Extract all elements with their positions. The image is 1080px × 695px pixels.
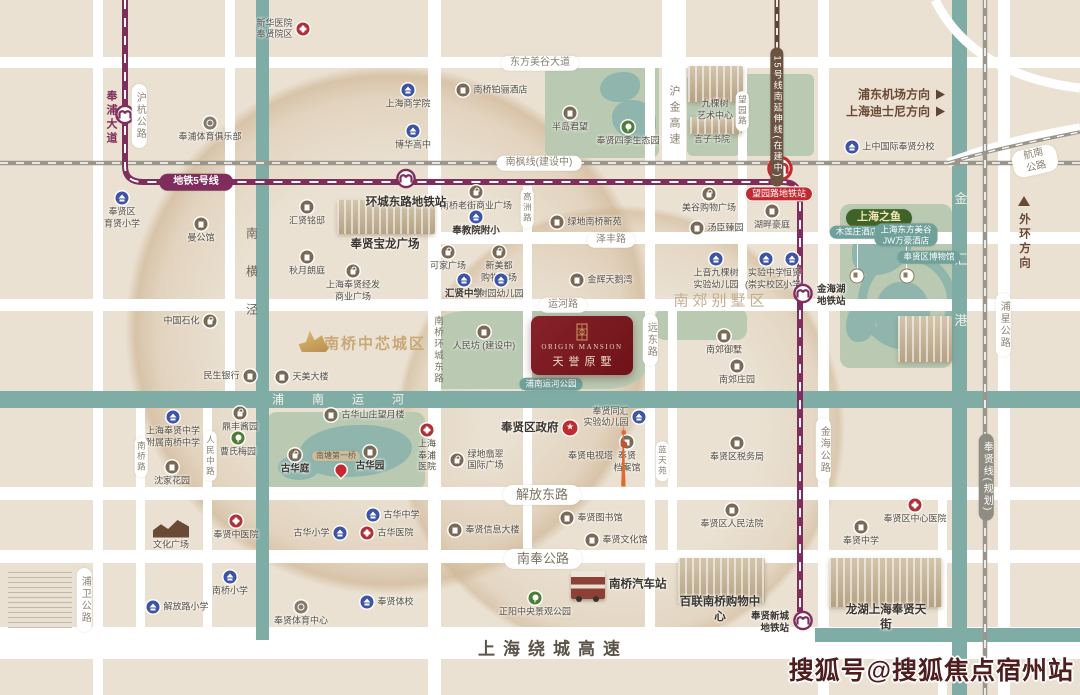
school-icon: [334, 527, 347, 540]
poi-label: 奉贤图书馆: [578, 512, 623, 524]
poi-label: 绿地南桥新苑: [568, 216, 622, 228]
poi-gov: 奉贤中学: [855, 521, 868, 534]
poi-gov: 天美大楼: [276, 371, 289, 384]
poi-label: 半岛君望: [552, 122, 588, 134]
poi-school: 恒贤 小学: [786, 253, 799, 266]
school-icon: [846, 141, 859, 154]
poi-res: 沈家花园: [166, 461, 179, 474]
school-icon: [407, 125, 420, 138]
poi-none: 龙湖上海奉贤天街: [841, 603, 931, 633]
poi-res: 南郊庄园: [731, 360, 744, 373]
poi-label: 上海奉贤经发 商业广场: [326, 280, 380, 303]
poi-school: 上中国际奉贤分校: [846, 141, 859, 154]
hosp-icon: [361, 527, 374, 540]
road-label: 奉贤线(规划): [979, 434, 994, 521]
poi-label: 古华山庄望月楼: [342, 409, 405, 421]
poi-school: 上海奉贤中学 附属南桥中学: [167, 411, 180, 424]
road-label: 15号线南延伸线(在建中): [770, 47, 783, 186]
bus-icon: [571, 571, 605, 599]
poi-label: 奉贤区 育贤小学: [104, 207, 140, 230]
poi-school: 南桥小学: [224, 571, 237, 584]
poi-school: 古华中学: [367, 509, 380, 522]
landmark-icon: [297, 326, 329, 352]
poi-label: 南郊庄园: [719, 375, 755, 387]
res-icon: [301, 201, 314, 214]
direction-label: 浦东机场方向: [858, 86, 945, 103]
poi-label: 上音九棵树 实验幼儿园: [693, 268, 738, 291]
poi-label: 秋月朗庭: [289, 266, 325, 278]
poi-hosp: 奉贤区中心医院: [909, 499, 922, 512]
map-big-label: 南桥环城东路: [430, 316, 444, 385]
project-name-en: ORIGIN MANSION: [541, 343, 622, 351]
poi-label: 汇贤中学: [445, 289, 483, 301]
road-label: 望园路地铁站: [745, 186, 813, 201]
poi-gov: 奉贤信息大楼: [449, 524, 462, 537]
culture-icon: [153, 519, 189, 538]
poi-tower: 奉贤电视塔: [617, 421, 631, 492]
poi-lakemark: [850, 269, 865, 284]
school-icon: [116, 192, 129, 205]
poi-shop: 鼎丰酱园: [234, 407, 247, 420]
school-icon: [470, 211, 483, 224]
poi-res: 金辉天鹅湾: [571, 274, 584, 287]
poi-res: 汇贤铭邸: [301, 201, 314, 214]
shop-icon: [442, 246, 455, 259]
project-emblem: [574, 323, 590, 341]
lakemark-icon: [900, 269, 915, 284]
school-icon: [458, 274, 471, 287]
shop-icon: [451, 454, 464, 467]
school-icon: [361, 596, 374, 609]
poi-label: 古华庭: [281, 464, 310, 476]
poi-label: 汇贤铭邸: [289, 216, 325, 228]
road-label: 地铁5号线: [159, 174, 233, 191]
poi-label: 古华中学: [384, 509, 420, 521]
school-icon: [786, 253, 799, 266]
poi-label: 百联南桥购物中心: [675, 595, 765, 625]
bank-icon: [244, 370, 257, 383]
road-label: 南枫线(建设中): [497, 156, 582, 171]
poi-lakemark: [900, 269, 915, 284]
poi-label: 奉贤区中心医院: [883, 514, 946, 526]
poi-label: 奉浦体育俱乐部: [178, 132, 241, 144]
poi-hosp: 奉贤中医院: [230, 515, 243, 528]
poi-label: 奉贤中医院: [213, 530, 258, 542]
res-icon: [731, 360, 744, 373]
poi-label: 奉贤四季生态园: [596, 136, 659, 148]
school-icon: [367, 509, 380, 522]
poi-label: 实验中学 (崇实校区): [745, 268, 787, 291]
kinder-icon: [633, 411, 646, 424]
poi-school: 博华高中: [407, 125, 420, 138]
poi-gov: 奉贤文化馆: [586, 534, 599, 547]
poi-park: 正阳中央景观公园: [529, 592, 542, 605]
poi-res: 曼公馆: [195, 218, 208, 231]
park-icon: [529, 592, 542, 605]
poi-label: 奉贤体育中心: [274, 616, 328, 628]
real-estate-location-map: ORIGIN MANSION 天誉原墅 搜狐号@搜狐焦点宿州站 上海绕城高速南郊…: [0, 0, 1080, 695]
res-icon: [571, 274, 584, 287]
poi-label: 南桥汽车站: [609, 578, 667, 593]
poi-none: 百联南桥购物中心: [675, 595, 765, 625]
hosp-icon: [297, 23, 310, 36]
poi-none: 言子书院: [694, 134, 730, 146]
poi-res: 汤臣臻园: [691, 222, 704, 235]
poi-bus: 南桥汽车站: [571, 571, 605, 599]
gov-icon: [586, 534, 599, 547]
map-big-label: 金汇港: [951, 192, 970, 375]
poi-res: 南郊御墅: [718, 330, 731, 343]
map-big-label: 浦南运河: [272, 391, 432, 408]
poi-none: 奉贤宝龙广场: [351, 238, 420, 253]
school-icon: [402, 84, 415, 97]
map-big-label: 南横泾: [244, 227, 261, 341]
res-icon: [551, 216, 564, 229]
road-label: 运河路: [539, 298, 587, 313]
res-icon: [195, 218, 208, 231]
poi-label: 中国石化: [163, 315, 199, 327]
park-icon: [622, 121, 635, 134]
poi-shop: 上海奉贤经发 商业广场: [347, 265, 360, 278]
school-icon: [167, 411, 180, 424]
gov-icon: [726, 504, 739, 517]
marker-connector: [857, 238, 858, 270]
poi-gov: 奉贤区人民法院: [726, 504, 739, 517]
direction-arrow-icon: [936, 106, 945, 116]
longhu-paradise-walk-illustration: [829, 558, 942, 607]
poi-park: 曹氏梅园: [232, 432, 245, 445]
poi-label: 南桥小学: [212, 586, 248, 598]
poi-shop: 可家广场: [442, 246, 455, 259]
road-label: 浦卫公路: [77, 568, 92, 632]
poi-star: ★奉贤区政府: [563, 421, 578, 436]
metro-icon: [793, 618, 813, 635]
res-icon: [325, 409, 338, 422]
kinder-icon: [710, 253, 723, 266]
poi-bank: 民生银行: [244, 370, 257, 383]
gov-icon: [855, 521, 868, 534]
disclaimer-text-block: [8, 572, 72, 630]
shop-icon: [470, 186, 483, 199]
metro-station-icon: [396, 169, 416, 189]
poi-kinder: 奉贤同汇 实验幼儿园: [633, 411, 646, 424]
school-icon: [147, 601, 160, 614]
poi-school: 汇贤中学: [458, 274, 471, 287]
road-label: 远东路: [643, 314, 658, 366]
poi-label: 奉教院附小: [452, 226, 500, 238]
res-icon: [166, 461, 179, 474]
poi-label: 解放路小学: [164, 601, 209, 613]
road-label: 浦南运河公园: [519, 378, 582, 391]
poi-hosp: 古华医院: [361, 527, 374, 540]
poi-school: 实验中学 (崇实校区): [760, 253, 773, 266]
poi-label: 环城东路地铁站: [366, 196, 447, 211]
poi-metro: 奉贤新城 地铁站: [793, 611, 813, 636]
res-icon: [478, 326, 491, 339]
poi-label: 湖畔豪庭: [754, 220, 790, 232]
poi-label: 新华医院 奉贤院区: [256, 17, 292, 40]
poi-res: 半岛君望: [564, 107, 577, 120]
road-label: 人民中路: [204, 431, 217, 481]
curved-road-topright: [935, 0, 1080, 88]
poi-label: 古华园: [356, 461, 385, 473]
poi-metro: 金海湖 地铁站: [793, 284, 813, 309]
poi-label: 古华医院: [378, 527, 414, 539]
poi-park: 奉贤四季生态园: [622, 121, 635, 134]
road-label: 南塘第一桥: [312, 451, 360, 461]
shop-icon: [347, 265, 360, 278]
poi-shop: 中国石化: [204, 315, 217, 328]
shop-icon: [234, 407, 247, 420]
poi-label: 奉贤区政府: [501, 421, 559, 436]
poi-label: 奉贤信息大楼: [466, 524, 520, 536]
poi-shop: 古华庭: [289, 449, 302, 462]
shop-icon: [493, 246, 506, 259]
sports-icon: [295, 601, 308, 614]
poi-gov: 奉贤区税务局: [731, 437, 744, 450]
poi-label: 上海商学院: [385, 99, 430, 111]
poi-shop: 南桥老街商业广场: [470, 186, 483, 199]
poi-gov: 奉贤图书馆: [561, 512, 574, 525]
tower-icon: [617, 474, 631, 491]
poi-shop: 美谷购物广场: [703, 188, 716, 201]
gov-icon: [561, 512, 574, 525]
hosp-icon: [909, 499, 922, 512]
metro-icon: [793, 291, 813, 308]
poi-label: 上海 奉浦 医院: [418, 439, 436, 474]
poi-label: 曹氏梅园: [220, 447, 256, 459]
project-card-origin-mansion: ORIGIN MANSION 天誉原墅: [531, 316, 633, 375]
gov-icon: [731, 437, 744, 450]
res-icon: [691, 222, 704, 235]
kinder-icon: [495, 274, 508, 287]
poi-label: 金海湖 地铁站: [817, 284, 846, 309]
poi-label: 奉贤区税务局: [710, 452, 764, 464]
road-label: 泽丰路: [587, 233, 635, 248]
poi-school: 解放路小学: [147, 601, 160, 614]
metro-station-icon: [793, 284, 813, 304]
metro-station-icon: [793, 611, 813, 631]
sohu-watermark: 搜狐号@搜狐焦点宿州站: [789, 651, 1074, 687]
res-icon: [564, 107, 577, 120]
poi-shop: 新美都 购物广场: [493, 246, 506, 259]
poi-school: 古华小学: [334, 527, 347, 540]
shop-icon: [289, 449, 302, 462]
road-label: 望园路: [736, 91, 749, 131]
poi-label: 曼公馆: [187, 233, 214, 245]
poi-label: 金辉天鹅湾: [588, 274, 633, 286]
road-label: 奉贤区博物馆: [897, 251, 960, 264]
poi-label: 言子书院: [694, 134, 730, 146]
poi-label: 树园幼儿园: [478, 289, 523, 301]
road-label: 南桥路: [135, 437, 148, 477]
park-icon: [232, 432, 245, 445]
gov-icon: [449, 524, 462, 537]
poi-label: 人民坊 (建设中): [453, 341, 516, 353]
map-big-label: 上海绕城高速: [478, 635, 628, 660]
res-icon: [301, 251, 314, 264]
outer-ring-arrow-icon: [1018, 196, 1030, 206]
poi-label: 天美大楼: [293, 371, 329, 383]
poi-landmark: [297, 326, 329, 352]
poi-sports: 奉贤体育中心: [295, 601, 308, 614]
jw-marriott-illustration: [898, 316, 952, 362]
sports-icon: [204, 117, 217, 130]
pin-icon: [333, 462, 349, 478]
poi-label: 九棵树 艺术中心: [697, 98, 733, 121]
hosp-icon: [230, 515, 243, 528]
res-icon: [364, 446, 377, 459]
poi-label: 正阳中央景观公园: [499, 607, 571, 619]
poi-res: 绿地南桥新苑: [551, 216, 564, 229]
school-icon: [224, 571, 237, 584]
shop-icon: [204, 315, 217, 328]
hosp-icon: [421, 424, 434, 437]
poi-label: 汤臣臻园: [708, 222, 744, 234]
poi-label: 上中国际奉贤分校: [863, 141, 935, 153]
school-icon: [760, 253, 773, 266]
poi-label: 奉贤中学: [843, 536, 879, 548]
map-big-label: 南桥中芯城区: [324, 333, 426, 354]
poi-label: 奉贤电视塔: [568, 450, 613, 462]
poi-label: 民生银行: [203, 370, 239, 382]
shop-icon: [703, 188, 716, 201]
tv-tower-icon: [617, 421, 631, 487]
poi-kinder: 上音九棵树 实验幼儿园: [710, 253, 723, 266]
poi-label: 奉贤区人民法院: [700, 519, 763, 531]
gov-icon: [276, 371, 289, 384]
poi-school: 奉贤体校: [361, 596, 374, 609]
poi-hosp: 新华医院 奉贤院区: [297, 23, 310, 36]
poi-res: 人民坊 (建设中): [478, 326, 491, 339]
poi-shop: 绿地翡翠 国际广场: [451, 454, 464, 467]
poi-label: 南桥铂骊酒店: [474, 84, 528, 96]
poi-res: 古华园: [364, 446, 377, 459]
road-label: 高洲路: [521, 188, 534, 228]
poi-label: 奉贤宝龙广场: [351, 238, 420, 253]
res-icon: [766, 205, 779, 218]
lakemark-icon: [850, 269, 865, 284]
poi-label: 可家广场: [430, 261, 466, 273]
poi-label: 绿地翡翠 国际广场: [468, 448, 504, 471]
poi-label: 南郊御墅: [706, 345, 742, 357]
poi-res: 湖畔豪庭: [766, 205, 779, 218]
poi-sports: 奉浦体育俱乐部: [204, 117, 217, 130]
road-label: 蓝天苑: [656, 441, 669, 481]
map-big-label: 沪金高速: [666, 85, 682, 149]
poi-none: 九棵树 艺术中心: [697, 98, 733, 121]
road-label: 上海东方美谷 JW万豪酒店: [874, 223, 937, 246]
map-big-label: 外环方向: [1016, 213, 1032, 271]
poi-kinder: 树园幼儿园: [495, 274, 508, 287]
poi-label: 美谷购物广场: [682, 203, 736, 215]
poi-res: 秋月朗庭: [301, 251, 314, 264]
poi-school: 奉教院附小: [470, 211, 483, 224]
poi-label: 龙湖上海奉贤天街: [841, 603, 931, 633]
road-label: 南奉公路: [504, 549, 582, 569]
poi-label: 奉贤文化馆: [603, 534, 648, 546]
metro-icon: [396, 176, 416, 193]
poi-school: 奉贤区 育贤小学: [116, 192, 129, 205]
poi-label: 文化广场: [153, 540, 189, 552]
road-label: 东方美谷大道: [501, 56, 579, 71]
poi-label: 上海奉贤中学 附属南桥中学: [146, 426, 200, 449]
poi-pin: [336, 465, 347, 476]
star-icon: ★: [563, 421, 578, 436]
poi-label: 博华高中: [395, 140, 431, 152]
hotel-icon: [457, 84, 470, 97]
direction-arrow-icon: [936, 89, 945, 99]
res-icon: [718, 330, 731, 343]
road-label: 解放东路: [503, 485, 581, 505]
project-name-cn: 天誉原墅: [548, 353, 617, 369]
poi-res: 古华山庄望月楼: [325, 409, 338, 422]
poi-hotel: 南桥铂骊酒店: [457, 84, 470, 97]
poi-culture: 文化广场: [153, 519, 189, 538]
poi-metro: 环城东路地铁站: [396, 169, 416, 194]
direction-label: 上海迪士尼方向: [846, 103, 945, 120]
poi-label: 古华小学: [293, 527, 329, 539]
map-big-label: 南郊别墅区: [673, 290, 768, 311]
poi-school: 上海商学院: [402, 84, 415, 97]
poi-hosp: 上海 奉浦 医院: [421, 424, 434, 437]
poi-label: 沈家花园: [154, 476, 190, 488]
road-label: 浦星公路: [996, 293, 1011, 357]
road-label: 沪杭公路: [132, 84, 147, 148]
poi-label: 奉贤体校: [378, 596, 414, 608]
road-label: 金海公路: [816, 418, 831, 482]
